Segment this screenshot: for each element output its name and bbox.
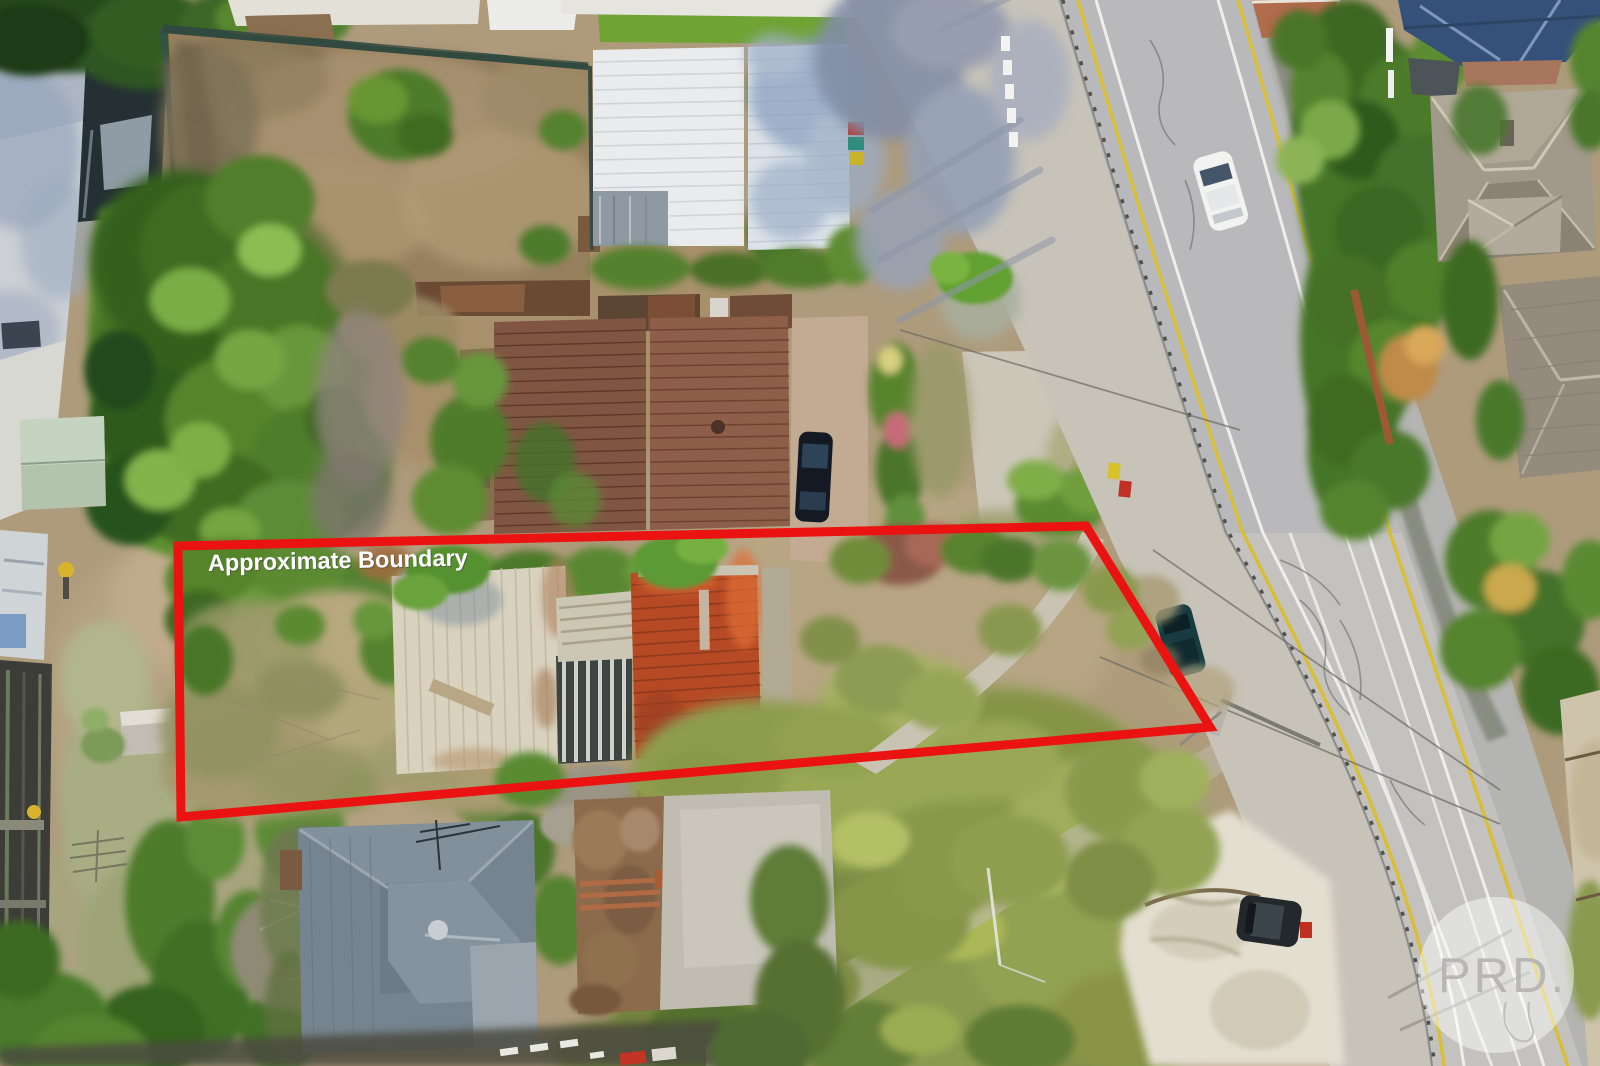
svg-text:PRD.: PRD. bbox=[1438, 949, 1567, 1003]
svg-text:Approximate Boundary: Approximate Boundary bbox=[208, 545, 468, 576]
